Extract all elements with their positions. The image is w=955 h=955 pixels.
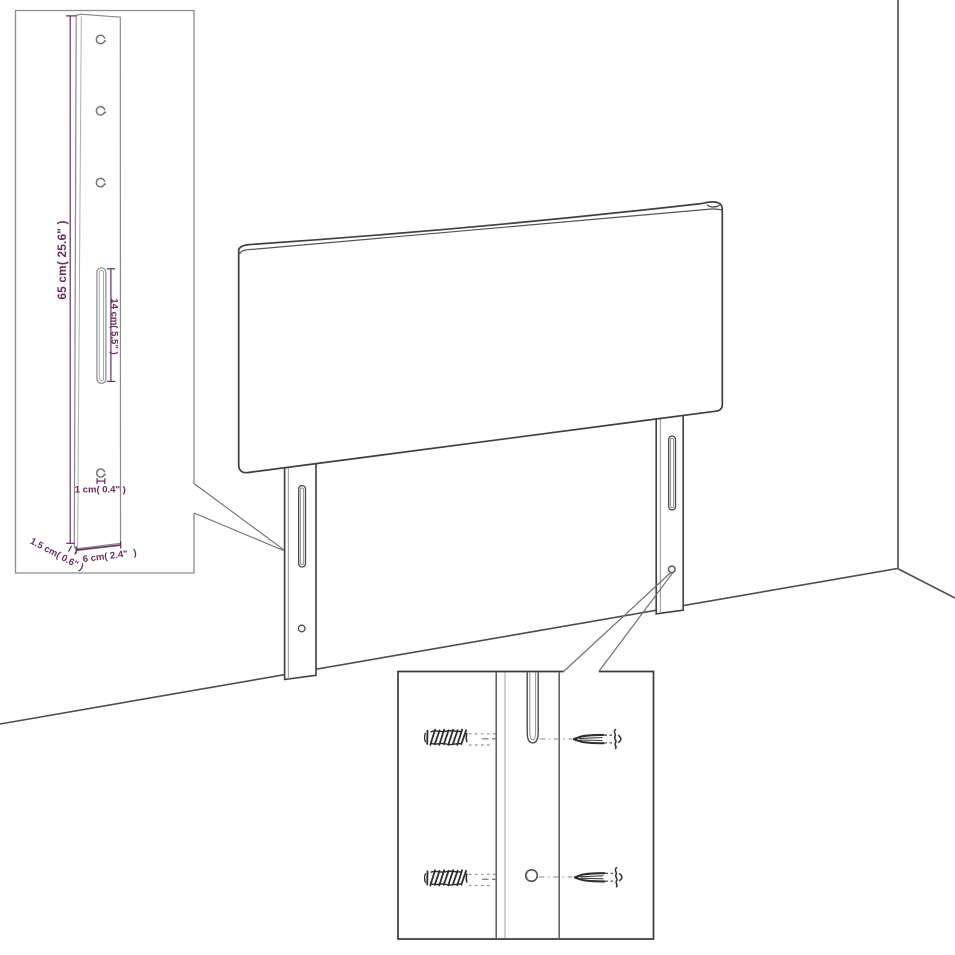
svg-text:14 cm( 5.5" ): 14 cm( 5.5" ) bbox=[109, 298, 120, 354]
svg-text:65 cm( 25.6" ): 65 cm( 25.6" ) bbox=[55, 220, 69, 299]
svg-text:1 cm( 0.4" ): 1 cm( 0.4" ) bbox=[75, 485, 126, 496]
